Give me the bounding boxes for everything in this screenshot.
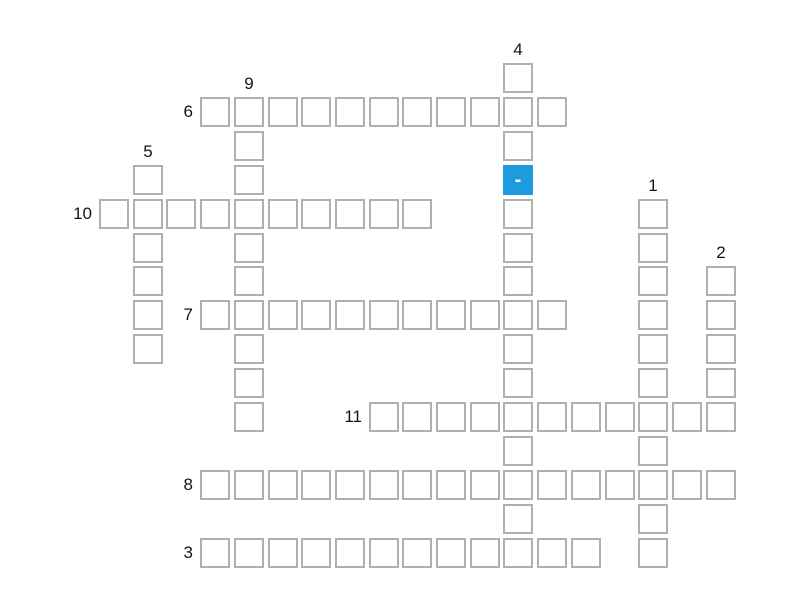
crossword-cell[interactable] [503,63,533,93]
crossword-cell[interactable] [503,266,533,296]
crossword-cell[interactable] [503,368,533,398]
crossword-cell[interactable] [234,131,264,161]
crossword-cell[interactable] [706,334,736,364]
crossword-cell[interactable] [638,199,668,229]
crossword-cell[interactable] [402,538,432,568]
crossword-cell[interactable] [638,470,668,500]
crossword-cell[interactable] [234,368,264,398]
crossword-cell[interactable] [402,402,432,432]
word-number-7: 7 [155,304,193,326]
crossword-cell[interactable] [638,334,668,364]
crossword-cell[interactable] [335,300,365,330]
crossword-cell[interactable] [200,199,230,229]
crossword-cell[interactable] [638,368,668,398]
crossword-cell[interactable] [638,300,668,330]
crossword-cell[interactable] [133,233,163,263]
crossword-cell[interactable] [537,402,567,432]
crossword-cell[interactable] [503,470,533,500]
crossword-cell[interactable] [672,402,702,432]
crossword-cell[interactable] [402,300,432,330]
crossword-grid: 1234567891011- [0,0,800,600]
crossword-cell[interactable] [301,470,331,500]
crossword-cell[interactable] [234,402,264,432]
crossword-cell[interactable] [470,300,500,330]
crossword-cell[interactable] [402,470,432,500]
crossword-cell[interactable] [133,199,163,229]
crossword-cell[interactable] [234,97,264,127]
crossword-cell[interactable] [537,97,567,127]
crossword-cell[interactable] [638,538,668,568]
crossword-cell[interactable] [200,97,230,127]
crossword-cell[interactable] [335,199,365,229]
active-cell[interactable]: - [503,165,533,195]
crossword-cell[interactable] [166,199,196,229]
crossword-cell[interactable] [503,538,533,568]
crossword-cell[interactable] [200,538,230,568]
crossword-cell[interactable] [638,436,668,466]
crossword-cell[interactable] [470,402,500,432]
word-number-5: 5 [118,141,178,163]
crossword-cell[interactable] [234,199,264,229]
crossword-cell[interactable] [268,470,298,500]
crossword-cell[interactable] [470,470,500,500]
crossword-cell[interactable] [369,300,399,330]
crossword-cell[interactable] [638,233,668,263]
crossword-cell[interactable] [99,199,129,229]
crossword-cell[interactable] [268,538,298,568]
crossword-cell[interactable] [301,97,331,127]
crossword-cell[interactable] [605,470,635,500]
crossword-cell[interactable] [234,300,264,330]
crossword-cell[interactable] [605,402,635,432]
crossword-cell[interactable] [706,402,736,432]
crossword-cell[interactable] [706,368,736,398]
crossword-cell[interactable] [503,300,533,330]
crossword-cell[interactable] [402,199,432,229]
crossword-cell[interactable] [436,470,466,500]
crossword-cell[interactable] [672,470,702,500]
crossword-cell[interactable] [638,402,668,432]
crossword-cell[interactable] [706,300,736,330]
crossword-cell[interactable] [571,402,601,432]
crossword-cell[interactable] [369,199,399,229]
crossword-cell[interactable] [335,538,365,568]
crossword-cell[interactable] [503,97,533,127]
crossword-cell[interactable] [503,436,533,466]
crossword-cell[interactable] [335,97,365,127]
crossword-cell[interactable] [301,199,331,229]
crossword-cell[interactable] [369,97,399,127]
crossword-cell[interactable] [638,266,668,296]
word-number-2: 2 [691,242,751,264]
crossword-cell[interactable] [571,470,601,500]
crossword-cell[interactable] [301,538,331,568]
word-number-3: 3 [155,542,193,564]
crossword-cell[interactable] [402,97,432,127]
crossword-cell[interactable] [133,266,163,296]
crossword-cell[interactable] [234,233,264,263]
crossword-cell[interactable] [503,402,533,432]
crossword-cell[interactable] [537,538,567,568]
crossword-cell[interactable] [234,165,264,195]
crossword-cell[interactable] [436,300,466,330]
crossword-cell[interactable] [503,131,533,161]
word-number-10: 10 [54,203,92,225]
crossword-cell[interactable] [301,300,331,330]
crossword-cell[interactable] [503,233,533,263]
crossword-cell[interactable] [335,470,365,500]
crossword-cell[interactable] [234,334,264,364]
crossword-cell[interactable] [470,97,500,127]
crossword-cell[interactable] [537,300,567,330]
crossword-cell[interactable] [436,538,466,568]
crossword-cell[interactable] [638,504,668,534]
crossword-cell[interactable] [470,538,500,568]
crossword-cell[interactable] [133,334,163,364]
crossword-cell[interactable] [268,199,298,229]
crossword-cell[interactable] [268,300,298,330]
crossword-cell[interactable] [234,266,264,296]
word-number-1: 1 [623,175,683,197]
crossword-cell[interactable] [200,300,230,330]
crossword-cell[interactable] [503,199,533,229]
crossword-cell[interactable] [234,538,264,568]
crossword-cell[interactable] [369,470,399,500]
crossword-cell[interactable] [133,165,163,195]
crossword-cell[interactable] [234,470,264,500]
word-number-4: 4 [488,39,548,61]
crossword-cell[interactable] [706,266,736,296]
word-number-9: 9 [219,73,279,95]
crossword-cell[interactable] [537,470,567,500]
crossword-cell[interactable] [268,97,298,127]
word-number-11: 11 [324,406,362,428]
word-number-8: 8 [155,474,193,496]
crossword-cell[interactable] [503,504,533,534]
crossword-cell[interactable] [436,97,466,127]
crossword-cell[interactable] [200,470,230,500]
crossword-cell[interactable] [436,402,466,432]
crossword-cell[interactable] [369,538,399,568]
crossword-cell[interactable] [503,334,533,364]
crossword-cell[interactable] [369,402,399,432]
word-number-6: 6 [155,101,193,123]
crossword-cell[interactable] [706,470,736,500]
crossword-cell[interactable] [571,538,601,568]
